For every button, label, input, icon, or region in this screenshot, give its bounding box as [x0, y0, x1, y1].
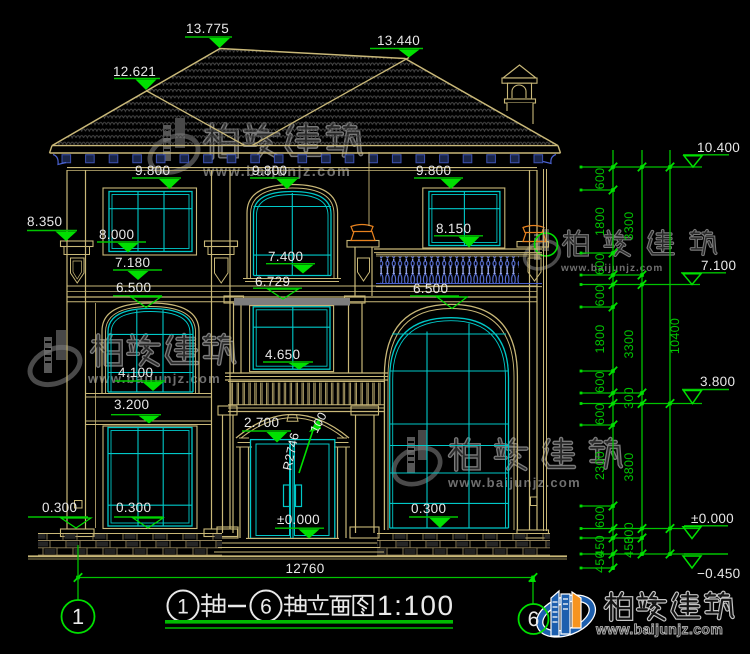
svg-text:0.300: 0.300 [116, 500, 151, 515]
svg-text:7.180: 7.180 [115, 255, 150, 270]
svg-text:450: 450 [622, 536, 636, 558]
svg-text:2.700: 2.700 [244, 415, 279, 430]
svg-text:0.300: 0.300 [411, 501, 446, 516]
svg-text:www.baijunjz.com: www.baijunjz.com [560, 263, 663, 274]
svg-text:12.621: 12.621 [113, 64, 156, 79]
svg-text:4.650: 4.650 [265, 347, 300, 362]
svg-text:3800: 3800 [622, 452, 636, 481]
svg-text:600: 600 [593, 168, 607, 190]
svg-text:600: 600 [593, 403, 607, 425]
svg-text:6: 6 [528, 608, 540, 631]
svg-text:13.775: 13.775 [186, 21, 229, 36]
svg-text:600: 600 [593, 506, 607, 528]
svg-text:6.500: 6.500 [116, 280, 151, 295]
svg-text:1800: 1800 [593, 324, 607, 353]
svg-text:10.400: 10.400 [697, 140, 740, 155]
svg-text:3300: 3300 [622, 329, 636, 358]
svg-text:10400: 10400 [668, 318, 682, 354]
svg-text:9.800: 9.800 [416, 163, 451, 178]
svg-text:3300: 3300 [622, 211, 636, 240]
svg-text:6.500: 6.500 [413, 281, 448, 296]
svg-text:8.350: 8.350 [27, 214, 62, 229]
svg-text:4.100: 4.100 [118, 365, 153, 380]
svg-text:7.100: 7.100 [701, 258, 736, 273]
svg-text:9.800: 9.800 [135, 163, 170, 178]
svg-text:1800: 1800 [593, 207, 607, 236]
svg-text:8.150: 8.150 [436, 221, 471, 236]
svg-text:12760: 12760 [285, 561, 324, 576]
svg-text:1:100: 1:100 [377, 590, 455, 621]
svg-text:3.200: 3.200 [114, 397, 149, 412]
svg-text:0.300: 0.300 [42, 500, 77, 515]
svg-text:1: 1 [72, 604, 84, 629]
svg-text:600: 600 [593, 253, 607, 275]
svg-text:600: 600 [593, 371, 607, 393]
svg-text:±0.000: ±0.000 [691, 511, 734, 526]
svg-text:−0.450: −0.450 [697, 566, 740, 581]
svg-text:600: 600 [593, 285, 607, 307]
svg-text:450: 450 [593, 551, 607, 573]
svg-text:9.800: 9.800 [252, 163, 287, 178]
svg-text:1: 1 [177, 596, 189, 619]
svg-text:6: 6 [260, 596, 272, 619]
svg-text:300: 300 [622, 387, 636, 409]
svg-text:6.729: 6.729 [255, 274, 290, 289]
svg-text:7.400: 7.400 [268, 249, 303, 264]
svg-text:www.baijunjz.com: www.baijunjz.com [595, 621, 723, 637]
svg-text:13.440: 13.440 [377, 33, 420, 48]
svg-text:3.800: 3.800 [700, 374, 735, 389]
svg-text:±0.000: ±0.000 [277, 512, 320, 527]
svg-text:2300: 2300 [593, 451, 607, 480]
svg-text:8.000: 8.000 [99, 227, 134, 242]
